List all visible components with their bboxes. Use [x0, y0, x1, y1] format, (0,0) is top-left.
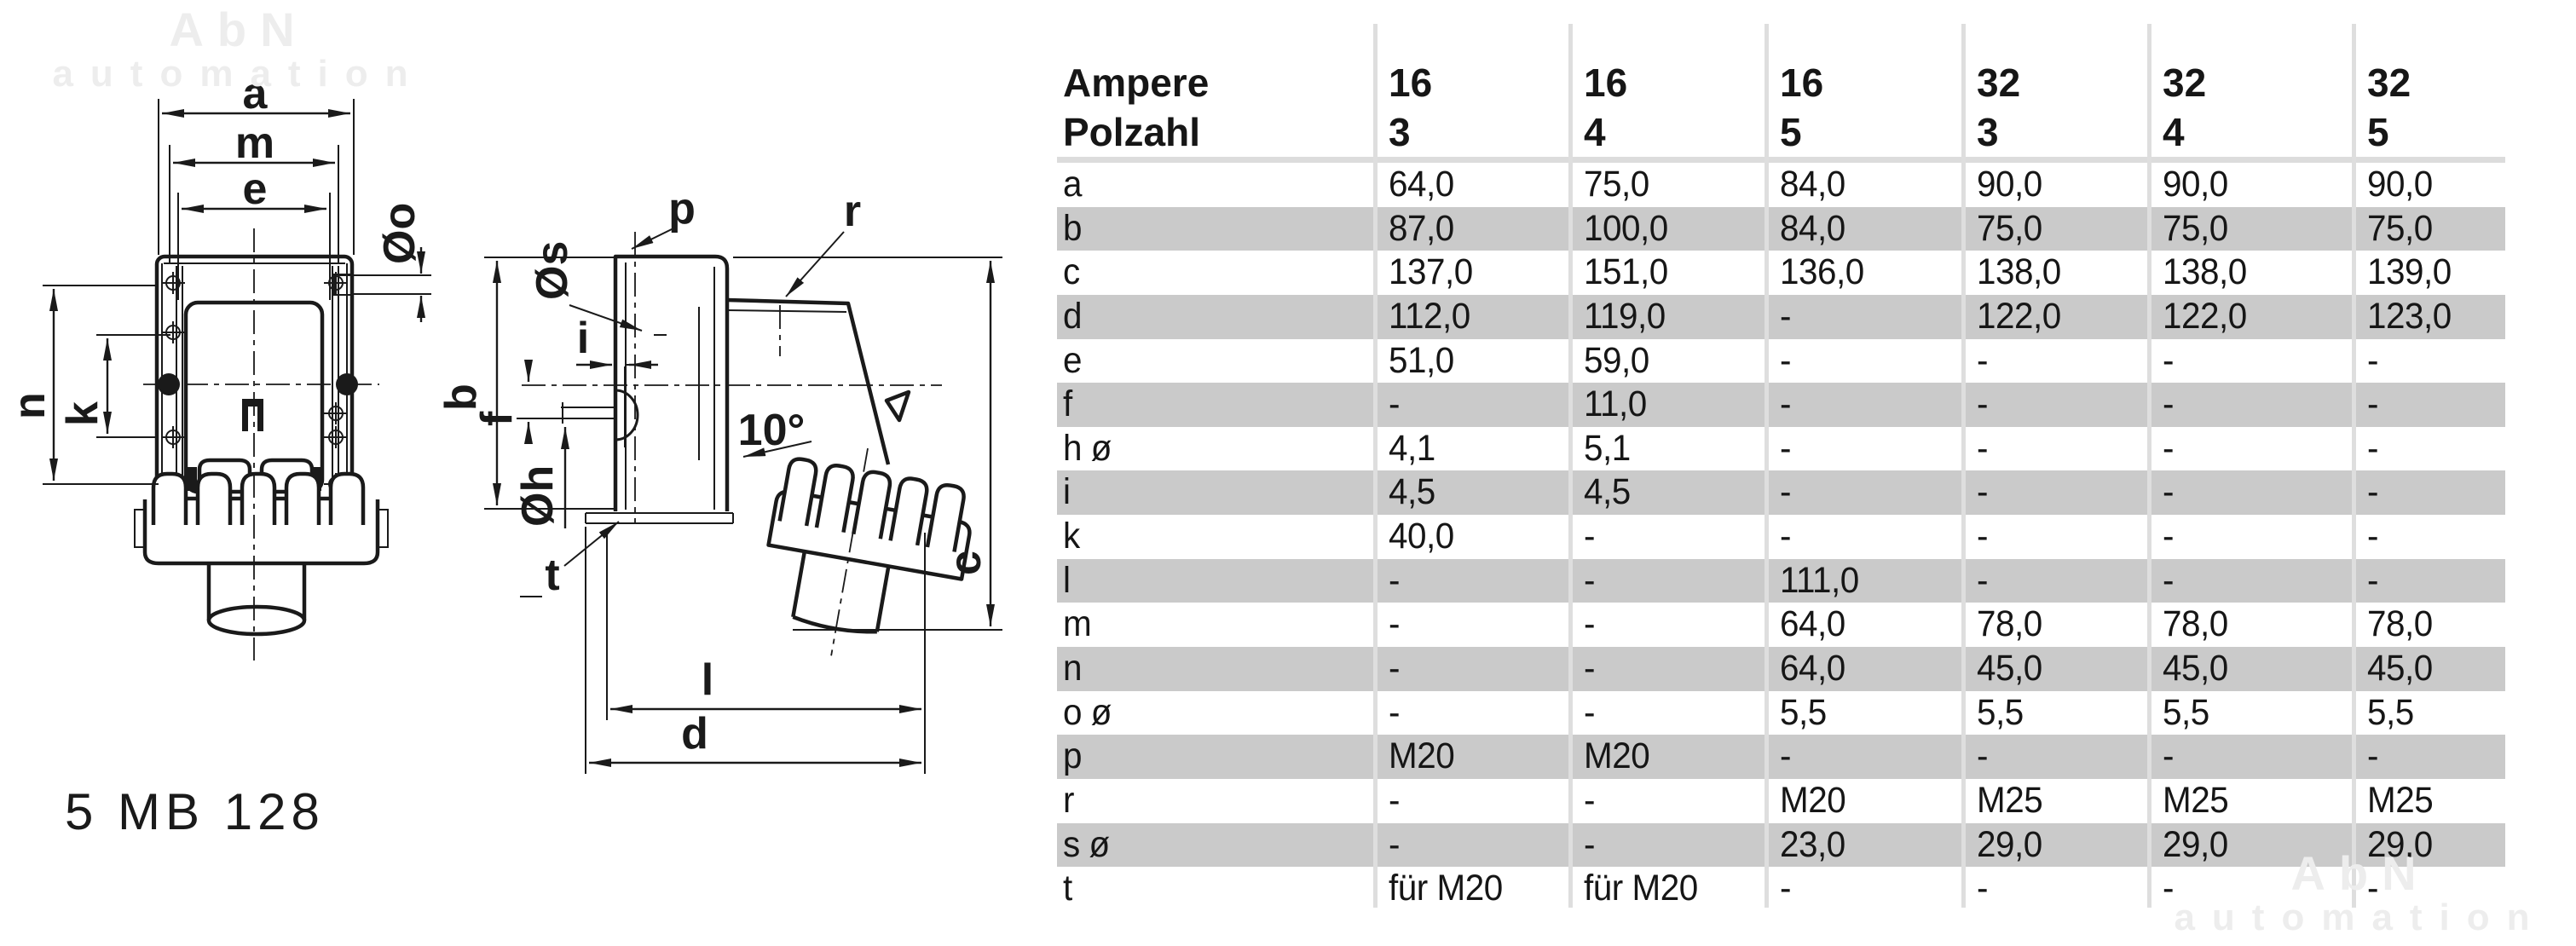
- table-cell: -: [1373, 647, 1568, 691]
- dim-label-oh: Øh: [513, 465, 563, 527]
- dim-label-i: i: [577, 314, 589, 363]
- datasheet-page: { "watermark": { "line1": "AbN", "line2"…: [0, 0, 2576, 946]
- table-row: s ø - - 23,0 29,0 29,0 29,0: [1057, 823, 2505, 868]
- row-label: t: [1057, 867, 1373, 911]
- table-cell: 136,0: [1765, 251, 1961, 295]
- dim-f: f: [472, 365, 564, 438]
- table-cell: M25: [2147, 779, 2352, 823]
- table-cell: -: [1765, 470, 1961, 515]
- table-cell: für M20: [1373, 867, 1568, 911]
- table-cell: 112,0: [1373, 295, 1568, 339]
- table-gridline: [1568, 24, 1573, 908]
- table-header: Ampere 16 16 16 32 32 32 Polzahl 3 4 5 3…: [1057, 24, 2505, 157]
- table-cell: 51,0: [1373, 339, 1568, 384]
- table-cell: 151,0: [1568, 251, 1765, 295]
- dim-label-e: e: [243, 164, 268, 214]
- table-cell: 111,0: [1765, 559, 1961, 603]
- table-cell: -: [2352, 559, 2505, 603]
- table-cell: 45,0: [2147, 647, 2352, 691]
- table-cell: M25: [2352, 779, 2505, 823]
- table-cell: 122,0: [1961, 295, 2147, 339]
- dim-label-m: m: [235, 118, 274, 168]
- table-row: n - - 64,0 45,0 45,0 45,0: [1057, 647, 2505, 691]
- row-label: o ø: [1057, 691, 1373, 735]
- table-cell: für M20: [1568, 867, 1765, 911]
- dim-label-p: p: [668, 184, 696, 234]
- table-cell: -: [1568, 691, 1765, 735]
- table-cell: -: [1961, 867, 2147, 911]
- dim-k: k: [58, 335, 170, 437]
- table-cell: -: [2352, 867, 2505, 911]
- dim-label-t: t: [545, 551, 559, 600]
- table-cell: 45,0: [2352, 647, 2505, 691]
- dim-n: n: [5, 286, 159, 484]
- header-cell: 4: [2147, 107, 2352, 157]
- table-cell: -: [2147, 559, 2352, 603]
- table-cell: 23,0: [1765, 823, 1961, 868]
- table-cell: -: [2147, 515, 2352, 559]
- table-cell: 139,0: [2352, 251, 2505, 295]
- dimension-table: Ampere 16 16 16 32 32 32 Polzahl 3 4 5 3…: [1057, 24, 2505, 911]
- table-row: f - 11,0 - - - -: [1057, 383, 2505, 427]
- table-cell: M20: [1765, 779, 1961, 823]
- table-cell: 59,0: [1568, 339, 1765, 384]
- table-row: r - - M20 M25 M25 M25: [1057, 779, 2505, 823]
- header-cell: 16: [1568, 58, 1765, 107]
- table-gridline: [1961, 24, 1966, 908]
- table-cell: 64,0: [1765, 603, 1961, 647]
- row-label: f: [1057, 383, 1373, 427]
- table-cell: 122,0: [2147, 295, 2352, 339]
- table-cell: -: [1765, 427, 1961, 471]
- table-cell: -: [2147, 427, 2352, 471]
- gland-collar: [135, 474, 388, 563]
- header-cell: 3: [1373, 107, 1568, 157]
- table-cell: -: [1373, 823, 1568, 868]
- table-row: l - - 111,0 - - -: [1057, 559, 2505, 603]
- header-cell: 32: [2352, 58, 2505, 107]
- table-cell: -: [1961, 470, 2147, 515]
- row-label: s ø: [1057, 823, 1373, 868]
- table-cell: 90,0: [2147, 163, 2352, 207]
- table-cell: -: [1765, 515, 1961, 559]
- table-body: a 64,0 75,0 84,0 90,0 90,0 90,0 b 87,0 1…: [1057, 163, 2505, 911]
- dim-label-oo: Øo: [375, 203, 425, 264]
- row-label: r: [1057, 779, 1373, 823]
- table-cell: 78,0: [2147, 603, 2352, 647]
- table-cell: -: [1568, 823, 1765, 868]
- header-cell: 5: [2352, 107, 2505, 157]
- table-cell: -: [2147, 735, 2352, 779]
- table-cell: -: [1765, 383, 1961, 427]
- table-cell: -: [2352, 339, 2505, 384]
- row-label: m: [1057, 603, 1373, 647]
- table-row: k 40,0 - - - - -: [1057, 515, 2505, 559]
- dim-label-f: f: [472, 411, 522, 426]
- table-row: t für M20 für M20 - - - -: [1057, 867, 2505, 911]
- table-gridline: [2147, 24, 2151, 908]
- table-cell: 90,0: [1961, 163, 2147, 207]
- table-cell: -: [2147, 470, 2352, 515]
- table-cell: M25: [1961, 779, 2147, 823]
- table-cell: 100,0: [1568, 207, 1765, 251]
- table-cell: 4,5: [1568, 470, 1765, 515]
- header-cell: 16: [1373, 58, 1568, 107]
- table-cell: -: [1373, 691, 1568, 735]
- header-cell: 4: [1568, 107, 1765, 157]
- table-cell: -: [1568, 647, 1765, 691]
- table-cell: -: [2352, 515, 2505, 559]
- dim-t: t: [520, 522, 619, 600]
- table-cell: -: [1961, 559, 2147, 603]
- table-cell: 75,0: [2352, 207, 2505, 251]
- side-view-drawing: Øs p r i f Øh: [460, 0, 1083, 861]
- table-cell: 137,0: [1373, 251, 1568, 295]
- row-label: n: [1057, 647, 1373, 691]
- table-cell: -: [2352, 470, 2505, 515]
- header-label: Polzahl: [1057, 107, 1373, 157]
- table-cell: 11,0: [1568, 383, 1765, 427]
- table-cell: 84,0: [1765, 207, 1961, 251]
- row-label: a: [1057, 163, 1373, 207]
- row-label: k: [1057, 515, 1373, 559]
- row-label: d: [1057, 295, 1373, 339]
- table-row: p M20 M20 - - - -: [1057, 735, 2505, 779]
- dim-r: r: [780, 187, 861, 356]
- table-cell: -: [1961, 383, 2147, 427]
- row-label: e: [1057, 339, 1373, 384]
- table-header-row-polzahl: Polzahl 3 4 5 3 4 5: [1057, 107, 2505, 157]
- table-cell: M20: [1373, 735, 1568, 779]
- table-cell: 78,0: [1961, 603, 2147, 647]
- table-cell: -: [1373, 603, 1568, 647]
- table-cell: 45,0: [1961, 647, 2147, 691]
- mounting-foot: [586, 513, 733, 523]
- table-cell: -: [2147, 339, 2352, 384]
- table-cell: 78,0: [2352, 603, 2505, 647]
- table-cell: -: [1765, 295, 1961, 339]
- row-label: b: [1057, 207, 1373, 251]
- header-cell: 16: [1765, 58, 1961, 107]
- table-cell: 40,0: [1373, 515, 1568, 559]
- front-view-drawing: a m e Øo: [0, 0, 477, 861]
- header-cell: 32: [1961, 58, 2147, 107]
- table-cell: 5,5: [1961, 691, 2147, 735]
- table-gridline: [1765, 24, 1769, 908]
- dim-label-n: n: [5, 392, 55, 419]
- table-cell: -: [1961, 735, 2147, 779]
- table-cell: -: [1961, 427, 2147, 471]
- table-header-separator: [1057, 157, 2505, 163]
- back-plate: [615, 232, 727, 524]
- dim-label-r: r: [844, 187, 861, 236]
- table-cell: -: [1568, 559, 1765, 603]
- table-cell: 64,0: [1765, 647, 1961, 691]
- table-row: a 64,0 75,0 84,0 90,0 90,0 90,0: [1057, 163, 2505, 207]
- table-cell: -: [1765, 735, 1961, 779]
- table-cell: -: [1961, 515, 2147, 559]
- table-cell: -: [1373, 383, 1568, 427]
- table-cell: -: [1373, 779, 1568, 823]
- dim-label-d: d: [681, 709, 708, 759]
- table-cell: 75,0: [2147, 207, 2352, 251]
- row-label: c: [1057, 251, 1373, 295]
- table-cell: 4,1: [1373, 427, 1568, 471]
- table-cell: 5,1: [1568, 427, 1765, 471]
- table-cell: 5,5: [1765, 691, 1961, 735]
- dim-p: p: [632, 184, 696, 249]
- dim-oo: Øo: [334, 203, 431, 322]
- table-cell: M20: [1568, 735, 1765, 779]
- table-row: b 87,0 100,0 84,0 75,0 75,0 75,0: [1057, 207, 2505, 251]
- table-row: i 4,5 4,5 - - - -: [1057, 470, 2505, 515]
- table-cell: -: [2147, 383, 2352, 427]
- table-cell: -: [1961, 339, 2147, 384]
- dim-label-c: c: [941, 551, 991, 575]
- table-cell: 29,0: [1961, 823, 2147, 868]
- row-label: h ø: [1057, 427, 1373, 471]
- header-label: Ampere: [1057, 58, 1373, 107]
- table-row: c 137,0 151,0 136,0 138,0 138,0 139,0: [1057, 251, 2505, 295]
- table-cell: 29,0: [2352, 823, 2505, 868]
- table-cell: 5,5: [2352, 691, 2505, 735]
- header-cell: 3: [1961, 107, 2147, 157]
- row-label: p: [1057, 735, 1373, 779]
- table-cell: 4,5: [1373, 470, 1568, 515]
- dim-label-os: Øs: [528, 241, 577, 300]
- table-cell: -: [1568, 779, 1765, 823]
- table-cell: 87,0: [1373, 207, 1568, 251]
- header-cell: 5: [1765, 107, 1961, 157]
- center-clip-icon: [242, 399, 263, 431]
- row-label: l: [1057, 559, 1373, 603]
- table-cell: -: [2352, 735, 2505, 779]
- table-header-row-ampere: Ampere 16 16 16 32 32 32: [1057, 58, 2505, 107]
- row-label: i: [1057, 470, 1373, 515]
- table-cell: 138,0: [2147, 251, 2352, 295]
- table-cell: -: [2352, 383, 2505, 427]
- table-cell: 84,0: [1765, 163, 1961, 207]
- table-cell: -: [1568, 603, 1765, 647]
- table-cell: -: [1568, 515, 1765, 559]
- table-cell: 75,0: [1568, 163, 1765, 207]
- table-cell: -: [2352, 427, 2505, 471]
- table-cell: 29,0: [2147, 823, 2352, 868]
- table-cell: 119,0: [1568, 295, 1765, 339]
- table-gridline: [2352, 24, 2356, 908]
- table-row: h ø 4,1 5,1 - - - -: [1057, 427, 2505, 471]
- table-cell: -: [2147, 867, 2352, 911]
- table-cell: -: [1765, 339, 1961, 384]
- dim-label-angle: 10°: [738, 406, 806, 455]
- cable-sleeve: [209, 563, 304, 634]
- table-gridline: [1373, 24, 1378, 908]
- dim-angle: 10°: [738, 406, 811, 457]
- table-cell: 64,0: [1373, 163, 1568, 207]
- table-cell: 5,5: [2147, 691, 2352, 735]
- table-cell: -: [1765, 867, 1961, 911]
- dim-label-k: k: [58, 401, 107, 426]
- part-number: 5 MB 128: [65, 782, 325, 841]
- table-cell: 138,0: [1961, 251, 2147, 295]
- table-cell: -: [1373, 559, 1568, 603]
- table-cell: 90,0: [2352, 163, 2505, 207]
- table-row: o ø - - 5,5 5,5 5,5 5,5: [1057, 691, 2505, 735]
- dim-label-a: a: [243, 69, 269, 118]
- dim-label-l: l: [702, 655, 713, 705]
- table-row: e 51,0 59,0 - - - -: [1057, 339, 2505, 384]
- table-row: m - - 64,0 78,0 78,0 78,0: [1057, 603, 2505, 647]
- table-cell: 123,0: [2352, 295, 2505, 339]
- table-row: d 112,0 119,0 - 122,0 122,0 123,0: [1057, 295, 2505, 339]
- table-cell: 75,0: [1961, 207, 2147, 251]
- dim-oh: Øh: [513, 427, 565, 528]
- header-cell: 32: [2147, 58, 2352, 107]
